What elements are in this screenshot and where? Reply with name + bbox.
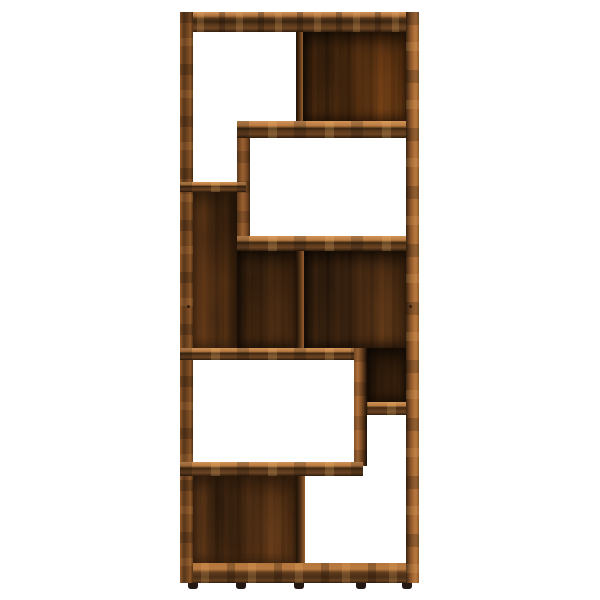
shelf-board-3	[180, 348, 367, 360]
divider-mid-right-board	[354, 348, 367, 466]
frame-bottom-board	[180, 563, 419, 583]
back-panel-top-right	[303, 32, 406, 122]
divider-mid-center	[296, 251, 304, 348]
divider-top-center	[296, 32, 303, 125]
divider-bottom-center	[296, 476, 305, 563]
screw-cap-dot	[187, 305, 190, 308]
shelf-board-1	[237, 121, 406, 138]
foot	[236, 583, 246, 589]
foot	[402, 583, 412, 589]
back-panel-right-lower	[367, 348, 406, 402]
compartment-open-bottom-right	[305, 476, 406, 563]
foot	[294, 583, 304, 589]
back-panel-mid-left	[237, 251, 296, 348]
frame-left-board	[180, 12, 193, 583]
back-panel-mid-right	[304, 251, 406, 348]
frame-right-board	[406, 12, 419, 583]
back-panel-mid-left-narrow	[193, 192, 237, 348]
shelf-board-5	[237, 236, 406, 251]
back-panel-bottom-left	[193, 476, 296, 563]
foot	[356, 583, 366, 589]
shelf-board-2	[180, 182, 246, 192]
compartment-open-center	[250, 138, 406, 236]
frame-top-board	[180, 12, 419, 32]
screw-cap-dot	[409, 305, 412, 308]
compartment-open-mid-left	[193, 360, 354, 462]
product-photo	[0, 0, 600, 600]
foot	[188, 583, 198, 589]
shelf-board-6	[180, 462, 363, 476]
